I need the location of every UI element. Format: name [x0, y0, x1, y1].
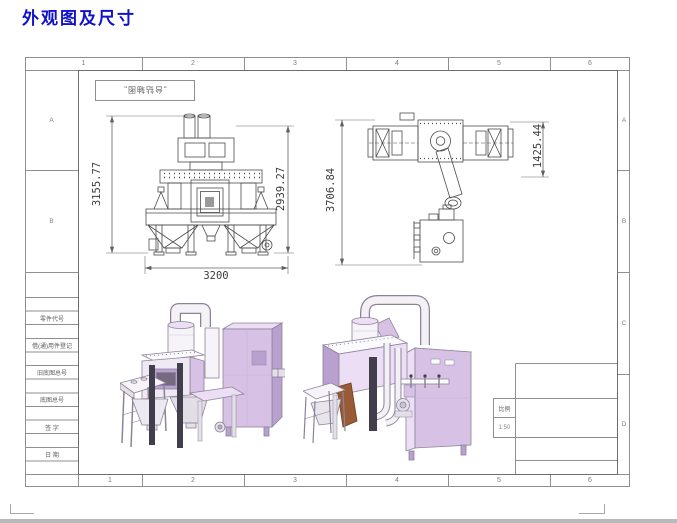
- parts-table-row-label: 签 字: [26, 420, 78, 434]
- grid-col-label: 5: [448, 57, 550, 70]
- grid-row-label: D: [618, 374, 630, 474]
- grid-col-label: 3: [244, 474, 346, 487]
- grid-col-label: 6: [550, 57, 630, 70]
- parts-table-row-label: 日 期: [26, 447, 78, 461]
- drawing-sheet-page: 外观图及尺寸 1 2 3 4 5 6 1 2 3 4 5 6: [0, 0, 677, 523]
- dim-label-front-height-right: 2939.27: [275, 159, 287, 219]
- grid-col-label: 3: [244, 57, 346, 70]
- scale-label: 比例: [494, 399, 515, 417]
- grid-row-label: C: [618, 272, 630, 374]
- grid-row-label: A: [25, 70, 78, 170]
- dim-label-top-width: 1425.44: [532, 116, 544, 176]
- iso-view-right: [303, 293, 483, 461]
- parts-table-row-label: 底图总号: [26, 393, 78, 406]
- parts-table-row-label: 零件代号: [26, 311, 78, 325]
- dim-label-top-length: 3706.84: [325, 160, 337, 220]
- front-view-drawing: [90, 110, 305, 285]
- grid-row-label: B: [618, 170, 630, 272]
- grid-col-label: 1: [78, 474, 142, 487]
- grid-col-label: 6: [550, 474, 630, 487]
- grid-col-label: 5: [448, 474, 550, 487]
- parts-table-row-label: 旧底图总号: [26, 366, 78, 379]
- grid-col-label: 4: [346, 57, 448, 70]
- iso-view-left: [120, 295, 285, 460]
- parts-table-row-label: 借(通)用件登记: [26, 338, 78, 352]
- dim-label-front-width: 3200: [196, 270, 236, 282]
- top-view-drawing: [325, 108, 553, 270]
- grid-col-label: 2: [142, 57, 244, 70]
- grid-col-label: 4: [346, 474, 448, 487]
- grid-col-label: 1: [25, 57, 142, 70]
- grid-row-label: A: [618, 70, 630, 170]
- view-title-label: „台钻轴图„: [95, 80, 195, 100]
- grid-row-label: B: [25, 170, 78, 272]
- dim-label-front-height-left: 3155.77: [91, 154, 103, 214]
- grid-col-label: 2: [142, 474, 244, 487]
- scale-value: 1:50: [494, 418, 515, 437]
